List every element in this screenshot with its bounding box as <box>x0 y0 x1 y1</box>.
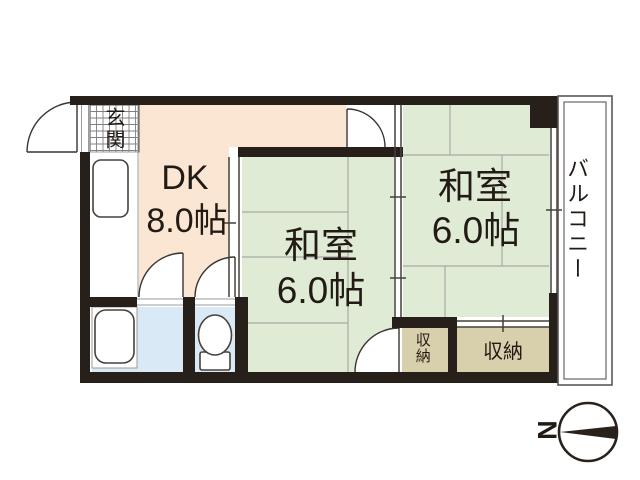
compass-north-label: N <box>533 414 561 446</box>
entrance-door <box>27 102 77 152</box>
wall-bath-toilet-divider <box>183 297 195 377</box>
pillar-top-right <box>530 96 558 128</box>
storage-large-label: 収納 <box>457 342 549 363</box>
wall-dk-strip-bottom <box>238 147 403 157</box>
genkan-label: 玄関 <box>102 107 123 151</box>
storage-small-label: 収納 <box>414 332 430 364</box>
wall-bottom <box>80 372 558 383</box>
wall-left <box>80 152 90 383</box>
entry-opening-frame <box>82 105 89 152</box>
dk-room-label: DK <box>135 161 235 197</box>
entrance-door-leaf <box>27 102 77 152</box>
entrance-door-arc <box>27 102 77 152</box>
washitsu-center-label: 和室 <box>245 227 397 266</box>
washitsu-right-size: 6.0帖 <box>395 212 557 251</box>
wall-left-stub <box>80 96 90 105</box>
strip-door-swing-area <box>346 105 394 147</box>
strip-door <box>346 105 394 147</box>
compass <box>559 403 617 461</box>
dk-room-size: 8.0帖 <box>112 204 262 240</box>
wall-right-lower <box>549 293 558 377</box>
washitsu-center-size: 6.0帖 <box>240 272 402 311</box>
wall-top <box>70 96 530 105</box>
wall-bath-top <box>90 297 137 307</box>
floor-plan: DK 8.0帖 和室 6.0帖 和室 6.0帖 玄関 バルコニー 収納 収納 N <box>0 0 640 480</box>
wall-storage-divider <box>448 318 457 377</box>
wall-storage-small-top <box>392 317 457 328</box>
bathtub <box>95 310 134 363</box>
toilet-bowl <box>199 315 232 355</box>
washitsu-right-label: 和室 <box>399 168 551 207</box>
balcony-label: バルコニー <box>565 157 588 282</box>
